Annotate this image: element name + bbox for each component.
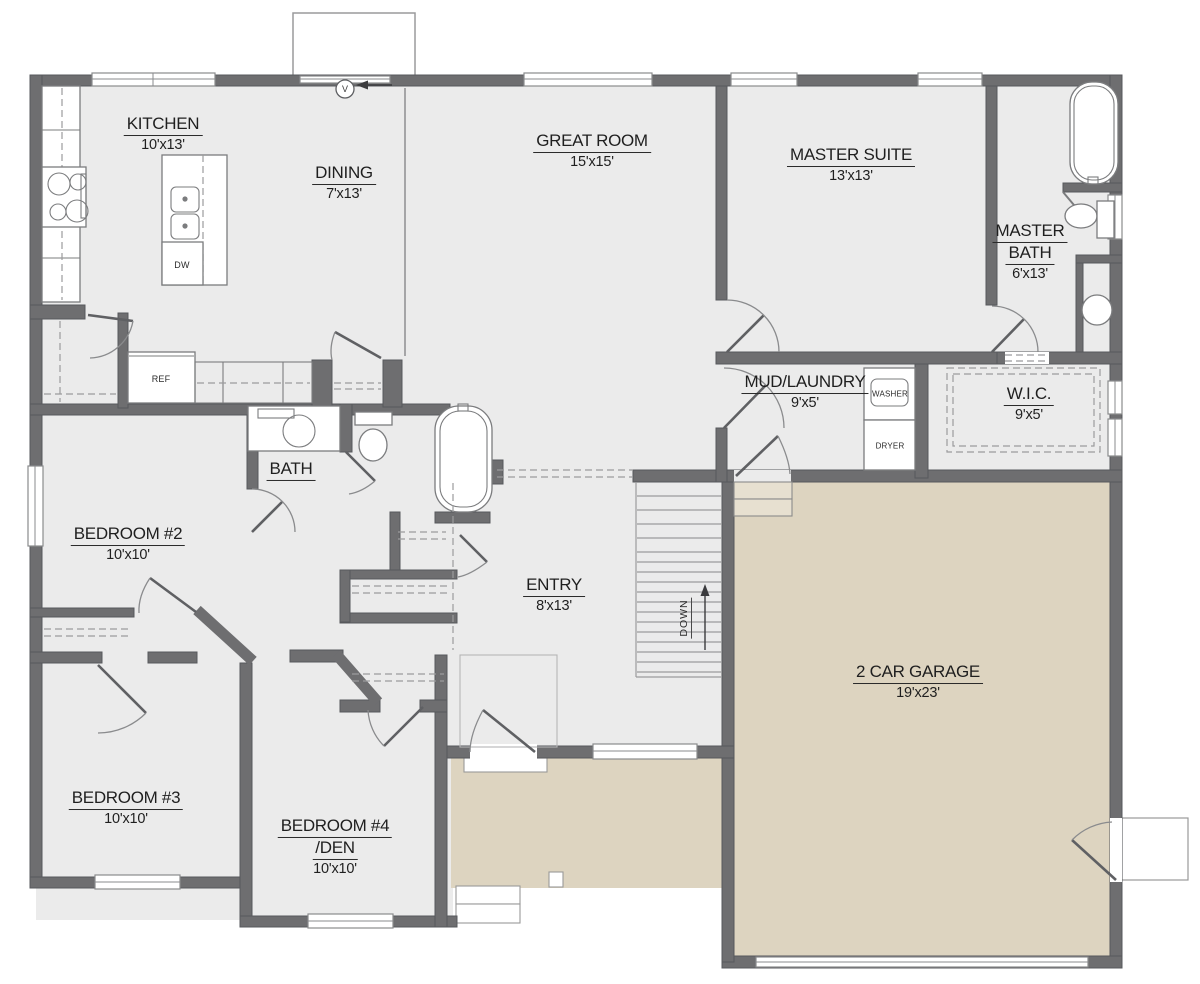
garage-door — [756, 957, 1088, 967]
porch-step-1 — [456, 886, 520, 904]
kitchen-window — [92, 73, 215, 86]
bedroom2-window — [28, 466, 43, 546]
front-stoop — [464, 758, 547, 772]
mud-garage-opening — [734, 470, 791, 482]
room-label-master-bath: MASTER BATH 6'x13' — [992, 221, 1067, 283]
entry-window — [593, 744, 697, 759]
garage-side-landing — [1122, 818, 1188, 880]
garage-steps — [734, 482, 792, 516]
room-label-bedroom-3: BEDROOM #3 10'x10' — [69, 788, 183, 828]
room-label-wic: W.I.C. 9'x5' — [1004, 384, 1054, 424]
bedroom3-window — [95, 875, 180, 889]
master-window-1 — [731, 73, 797, 86]
garage-side-door-opening — [1110, 818, 1122, 882]
room-label-garage: 2 CAR GARAGE 19'x23' — [853, 662, 983, 702]
greatroom-window — [524, 73, 652, 86]
room-label-master-suite: MASTER SUITE 13'x13' — [787, 145, 915, 185]
master-tub — [1070, 82, 1118, 184]
label-refrigerator: REF — [152, 374, 171, 384]
master-toilet — [1082, 295, 1112, 325]
room-label-dining: DINING 7'x13' — [312, 163, 376, 203]
label-vent: V — [342, 84, 348, 94]
stove — [42, 167, 88, 227]
label-stairs-down: DOWN — [678, 597, 692, 638]
bath-tub — [435, 404, 492, 512]
patio-bumpout — [293, 13, 415, 76]
room-label-entry: ENTRY 8'x13' — [523, 575, 585, 615]
label-dishwasher: DW — [174, 260, 189, 270]
room-label-bedroom-4: BEDROOM #4 /DEN 10'x10' — [278, 816, 392, 878]
wic-window-2 — [1108, 419, 1122, 456]
room-label-mud-laundry: MUD/LAUNDRY 9'x5' — [741, 372, 868, 412]
bedroom4-window — [308, 914, 393, 928]
bath-vanity — [248, 406, 340, 451]
room-label-kitchen: KITCHEN 10'x13' — [124, 114, 203, 154]
master-window-2 — [918, 73, 982, 86]
garage-floor — [728, 476, 1116, 962]
room-label-bath: BATH — [267, 459, 316, 481]
wic-window-1 — [1108, 381, 1122, 414]
room-label-bedroom-2: BEDROOM #2 10'x10' — [71, 524, 185, 564]
porch-post — [549, 872, 563, 887]
kitchen-island — [162, 155, 227, 285]
masterbath-wic-opening — [1005, 352, 1049, 364]
label-dryer: DRYER — [876, 442, 905, 451]
label-washer: WASHER — [872, 390, 908, 399]
room-label-great-room: GREAT ROOM 15'x15' — [533, 131, 651, 171]
floor-plan: KITCHEN 10'x13' DINING 7'x13' GREAT ROOM… — [0, 0, 1200, 984]
porch-step-2 — [456, 904, 520, 923]
